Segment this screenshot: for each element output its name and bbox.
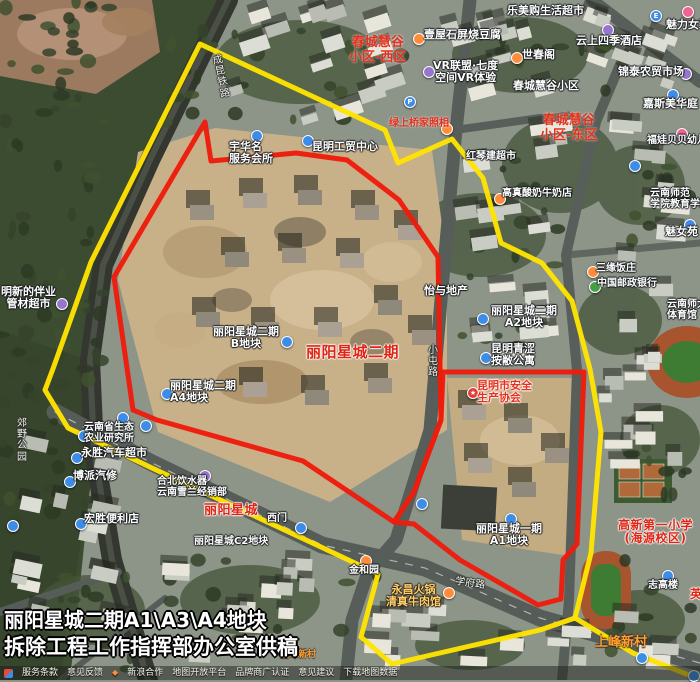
poi-icon-hotpot[interactable] [443, 587, 455, 599]
footer-link[interactable]: 下载地图数据 [343, 669, 397, 678]
poi-label-shichunge[interactable]: 世春阁 [522, 49, 555, 61]
poi-icon[interactable] [295, 522, 307, 534]
school-label: 高新第一小学 (海源校区) [618, 519, 693, 546]
metro-icon[interactable] [114, 611, 126, 623]
poi-label-supermarket[interactable]: 乐美购生活超市 [507, 5, 584, 17]
map-footer-bar: 服务条款意见反馈◆新浪合作地图开放平台品牌商广认证意见建议下载地图数据 [0, 666, 700, 680]
poi-label-water[interactable]: 合北饮水器 云南雪兰经销部 [157, 476, 227, 498]
poi-label-tofu[interactable]: 壹屋石屏烧豆腐 [424, 29, 501, 41]
poi-icon[interactable] [416, 498, 428, 510]
poi-label-clipped: 英 [690, 588, 700, 601]
park-label: 郊 野 公 园 [17, 418, 27, 463]
satellite-map-screenshot: { "title": { "line1": "丽阳星城二期A1\\A3\\A4地… [0, 0, 700, 680]
poi-label-hotel[interactable]: 云上四季酒店 [576, 35, 642, 47]
footer-link[interactable]: 意见建议 [298, 669, 334, 678]
poi-label-safety-assoc[interactable]: 昆明市安全 生产协会 [477, 380, 532, 405]
poi-label-meinvyuan[interactable]: 魅女苑 [665, 226, 698, 238]
district-label-huigu-east: 春城慧谷 小区-东区 [540, 114, 597, 143]
poi-label-repair[interactable]: 博派汽修 [73, 470, 117, 482]
poi-label-vr[interactable]: VR联盟·七度 空间VR体验 [433, 60, 498, 85]
footer-flame-icon: ◆ [112, 669, 118, 677]
poi-icon[interactable] [636, 652, 648, 664]
map-logo-icon [4, 669, 13, 678]
map-canvas[interactable]: EP★ 春城慧谷 小区-西区壹屋石屏烧豆腐VR联盟·七度 空间VR体验世春阁乐美… [0, 0, 700, 680]
poi-icon-a2[interactable] [477, 313, 489, 325]
district-label-liyang-phase2: 丽阳星城二期 [306, 344, 399, 361]
district-label-huigu-west: 春城慧谷 小区-西区 [349, 36, 406, 65]
poi-label-milk[interactable]: 高真酸奶牛奶店 [502, 188, 572, 199]
poi-label-west-gate: 西门 [267, 513, 287, 524]
poi-label-yiyu[interactable]: 怡与地产 [424, 285, 468, 297]
poi-label-post-bank[interactable]: 中国邮政银行 [597, 278, 657, 289]
poi-icon[interactable] [56, 298, 68, 310]
poi-icon[interactable] [682, 6, 694, 18]
poi-label-club[interactable]: 宇华名 服务会所 [229, 141, 273, 166]
poi-label-meili[interactable]: 魅力女装 [666, 19, 700, 31]
village-label-small: 上峰新村 [280, 650, 316, 660]
poi-label-c2: 丽阳星城C2地块 [194, 536, 268, 547]
stadium-label: 云南师大 体育馆 [667, 299, 700, 321]
poi-label-auto-market[interactable]: 永胜汽车超市 [81, 447, 147, 459]
poi-label-market[interactable]: 锦泰农贸市场 [618, 66, 684, 78]
poi-label-jiasi[interactable]: 嘉斯美华庭 [643, 98, 698, 110]
poi-label-jinheyuan[interactable]: 金和园 [349, 565, 379, 576]
footer-link[interactable]: 地图开放平台 [172, 669, 226, 678]
poi-icon[interactable] [7, 520, 19, 532]
poi-label-restaurant[interactable]: 三缘饭庄 [596, 263, 636, 274]
poi-label-gongmao: 昆明工贸中心 [312, 141, 378, 153]
road-label-xiaotun: 小 屯 路 [428, 345, 438, 379]
satellite-basemap [0, 0, 700, 680]
poi-label-pipe-store[interactable]: 明新的伴业 管材超市 [1, 286, 56, 311]
parking-icon[interactable]: P [404, 96, 416, 108]
poi-label-photo[interactable]: 绿上桥家照相 [389, 118, 449, 129]
poi-label-a2[interactable]: 丽阳星城二期 A2地块 [491, 305, 557, 330]
poi-label-hotpot[interactable]: 永昌火锅 清真牛肉馆 [386, 584, 441, 609]
poi-icon[interactable]: E [650, 10, 662, 22]
poi-label-apartment[interactable]: 昆明青涩 按敝公寓 [491, 343, 535, 368]
village-label: 上峰新村 [595, 636, 647, 651]
poi-label-hongqin[interactable]: 红琴建超市 [466, 151, 516, 162]
poi-label-a4[interactable]: 丽阳星城二期 A4地块 [170, 380, 236, 405]
footer-link[interactable]: 服务条款 [22, 669, 58, 678]
poi-icon[interactable] [140, 420, 152, 432]
footer-link[interactable]: 品牌商广认证 [235, 669, 289, 678]
footer-link[interactable]: 意见反馈 [67, 669, 103, 678]
footer-link[interactable]: 新浪合作 [127, 669, 163, 678]
poi-label-normal-college: 云南师范 学院教育学院 [650, 188, 700, 210]
poi-icon-b-block[interactable] [281, 336, 293, 348]
poi-label-eco-institute[interactable]: 云南省生态 农业研究所 [84, 422, 134, 444]
poi-label-a1[interactable]: 丽阳星城一期 A1地块 [476, 523, 542, 548]
district-label-liyang: 丽阳星城 [204, 504, 258, 519]
poi-label-zhigaolou[interactable]: 志高楼 [648, 580, 678, 591]
district-label-huigu: 春城慧谷小区 [513, 80, 579, 92]
poi-label-kindergarten[interactable]: 福娃贝贝幼儿园 [647, 135, 700, 146]
poi-label-b-block[interactable]: 丽阳星城二期 B地块 [213, 326, 279, 351]
poi-label-store[interactable]: 宏胜便利店 [84, 513, 139, 525]
bus-stop-icon[interactable] [629, 160, 641, 172]
